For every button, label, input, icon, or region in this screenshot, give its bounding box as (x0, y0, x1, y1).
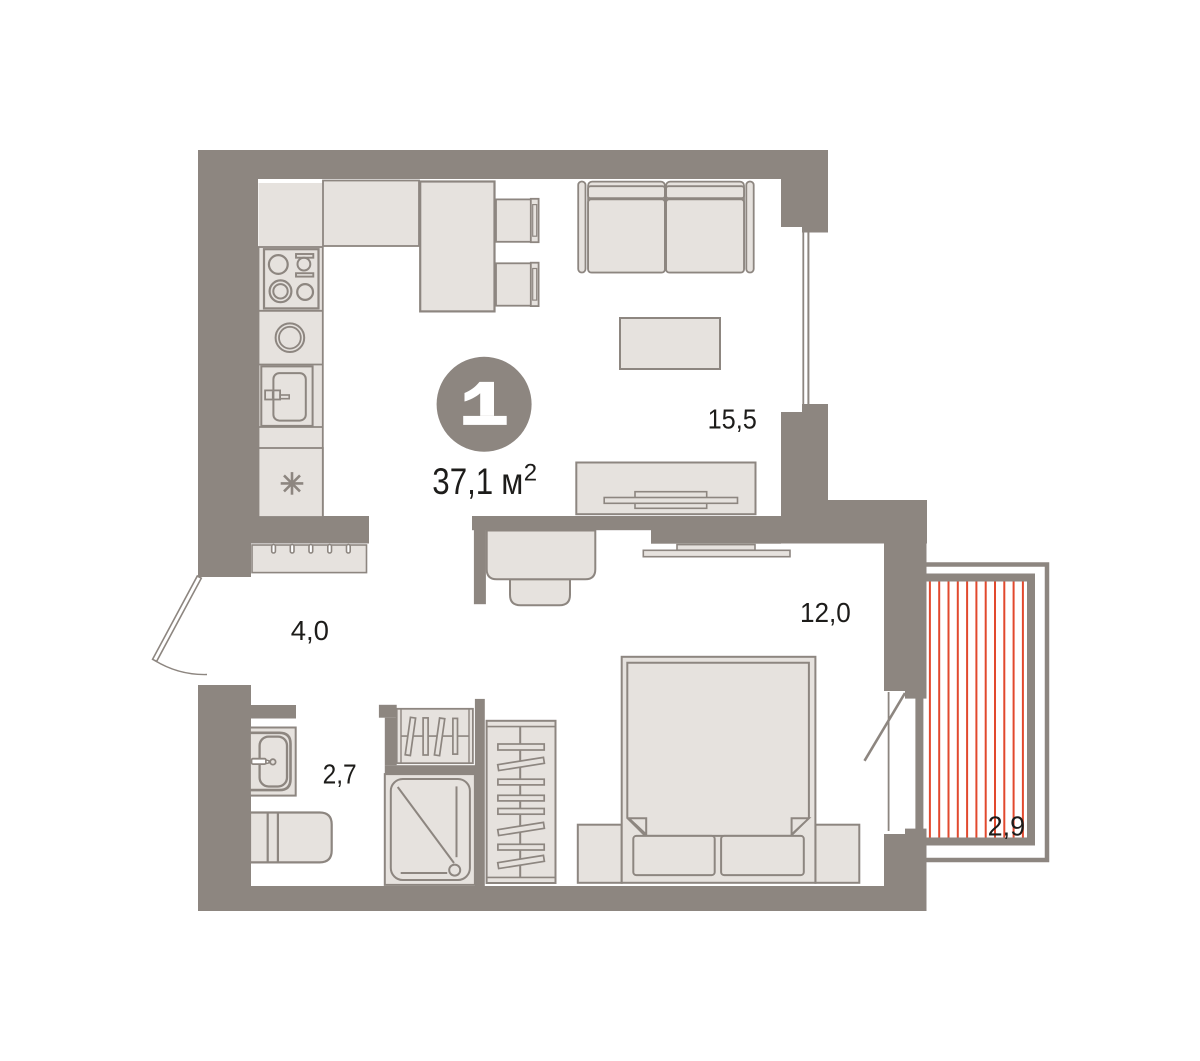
svg-text:2,9: 2,9 (988, 810, 1025, 841)
svg-text:м: м (501, 462, 523, 503)
svg-text:12,0: 12,0 (800, 597, 851, 628)
svg-text:4,0: 4,0 (291, 615, 329, 646)
svg-text:37,1: 37,1 (432, 462, 493, 503)
svg-text:15,5: 15,5 (708, 404, 757, 435)
svg-text:2: 2 (524, 460, 537, 487)
svg-text:2,7: 2,7 (323, 758, 357, 790)
